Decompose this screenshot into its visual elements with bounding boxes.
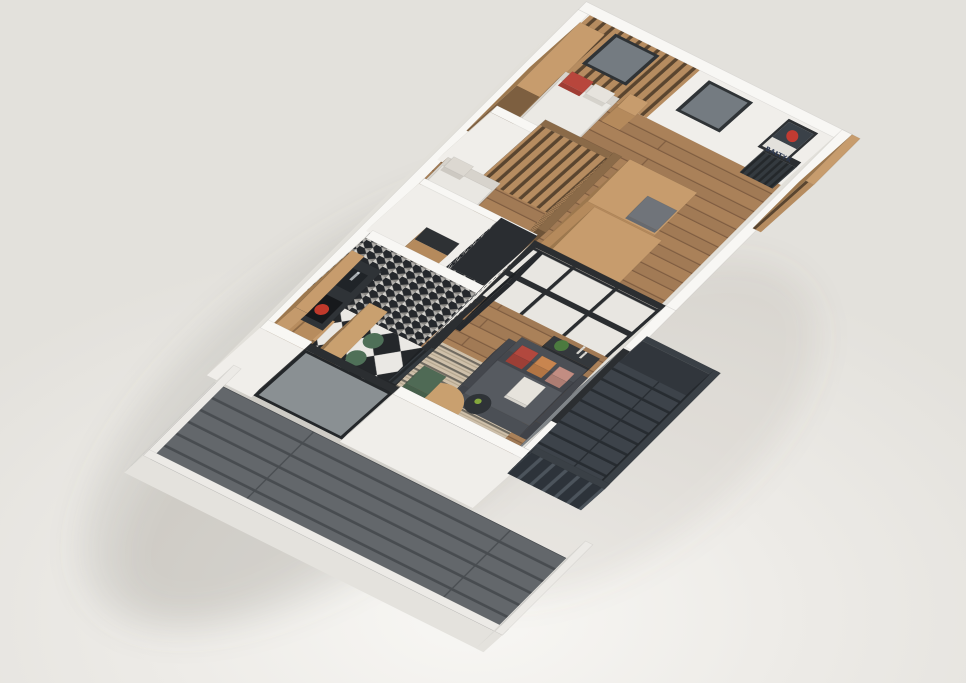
- poster-sun: [786, 130, 798, 142]
- render-canvas: BAŁTYK: [0, 0, 966, 683]
- apartment-3d-render: BAŁTYK: [0, 0, 966, 683]
